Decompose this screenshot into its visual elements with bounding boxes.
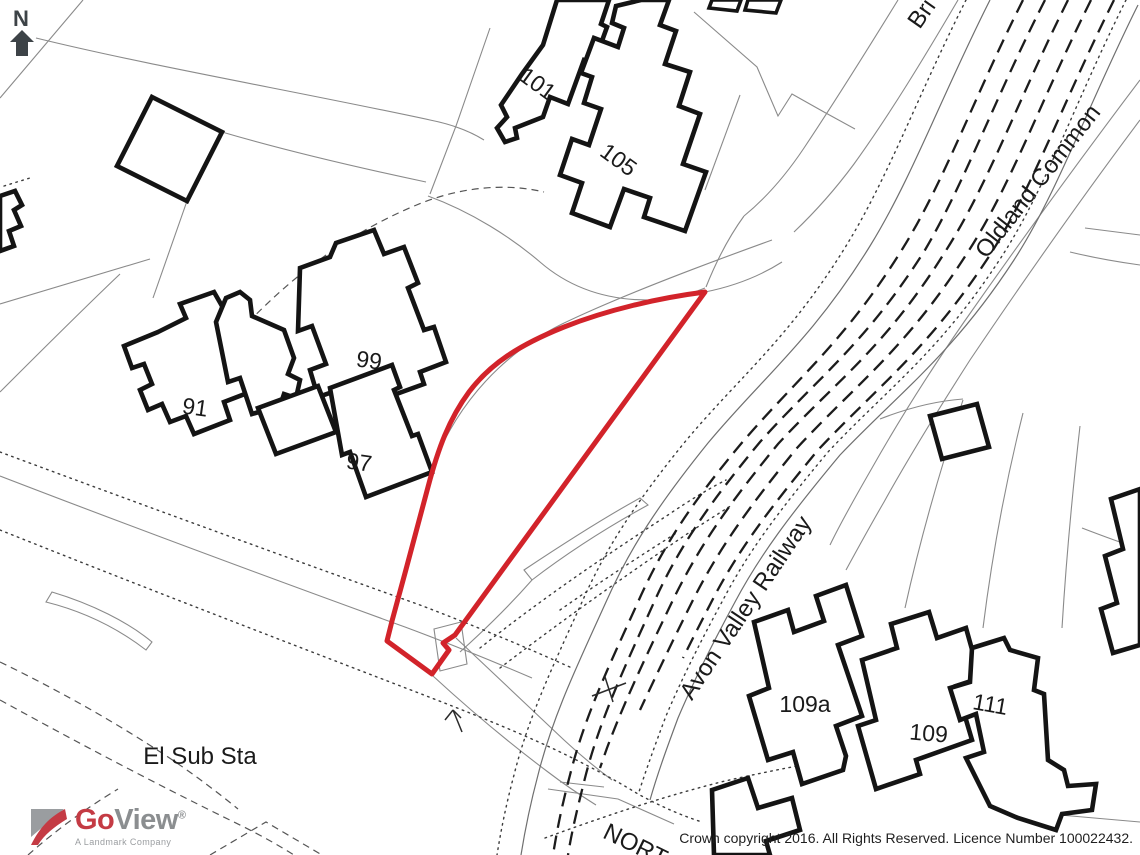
building-small-square-east [930, 404, 989, 459]
flow-arrow-icon [445, 710, 462, 732]
site-plan-map: N 101 105 99 91 97 109a 109 111 Avon Val… [0, 0, 1140, 855]
map-canvas: N 101 105 99 91 97 109a 109 111 Avon Val… [0, 0, 1140, 855]
label-building-109: 109 [908, 718, 948, 747]
level-crossing-icon [592, 677, 626, 702]
building-square-topleft [117, 97, 222, 201]
north-arrow-icon: N [10, 6, 34, 56]
goview-logo-icon [28, 806, 68, 846]
north-label: N [13, 6, 29, 31]
copyright-notice: Crown copyright 2016. All Rights Reserve… [679, 830, 1133, 846]
label-oldland-common: Oldland Common [970, 99, 1106, 263]
building-left-edge [0, 191, 22, 251]
goview-tagline: A Landmark Company [75, 838, 185, 847]
goview-logo: GoView® A Landmark Company [28, 806, 185, 847]
label-building-97: 97 [345, 447, 374, 476]
registered-trademark-icon: ® [178, 809, 186, 821]
goview-logo-go: Go [75, 804, 114, 836]
buildings [0, 0, 1140, 855]
label-el-sub-sta: El Sub Sta [143, 743, 257, 770]
goview-logo-view: View [114, 804, 178, 836]
building-top-fragment-1 [709, 0, 741, 11]
label-road-bri: Bri [902, 0, 941, 33]
label-road-north: NORT [599, 818, 672, 855]
building-109a [749, 585, 862, 784]
building-right-edge [1101, 489, 1140, 653]
building-top-fragment-2 [745, 0, 781, 13]
label-building-91: 91 [181, 392, 210, 421]
label-building-109a: 109a [779, 691, 830, 717]
label-building-99: 99 [355, 345, 384, 374]
